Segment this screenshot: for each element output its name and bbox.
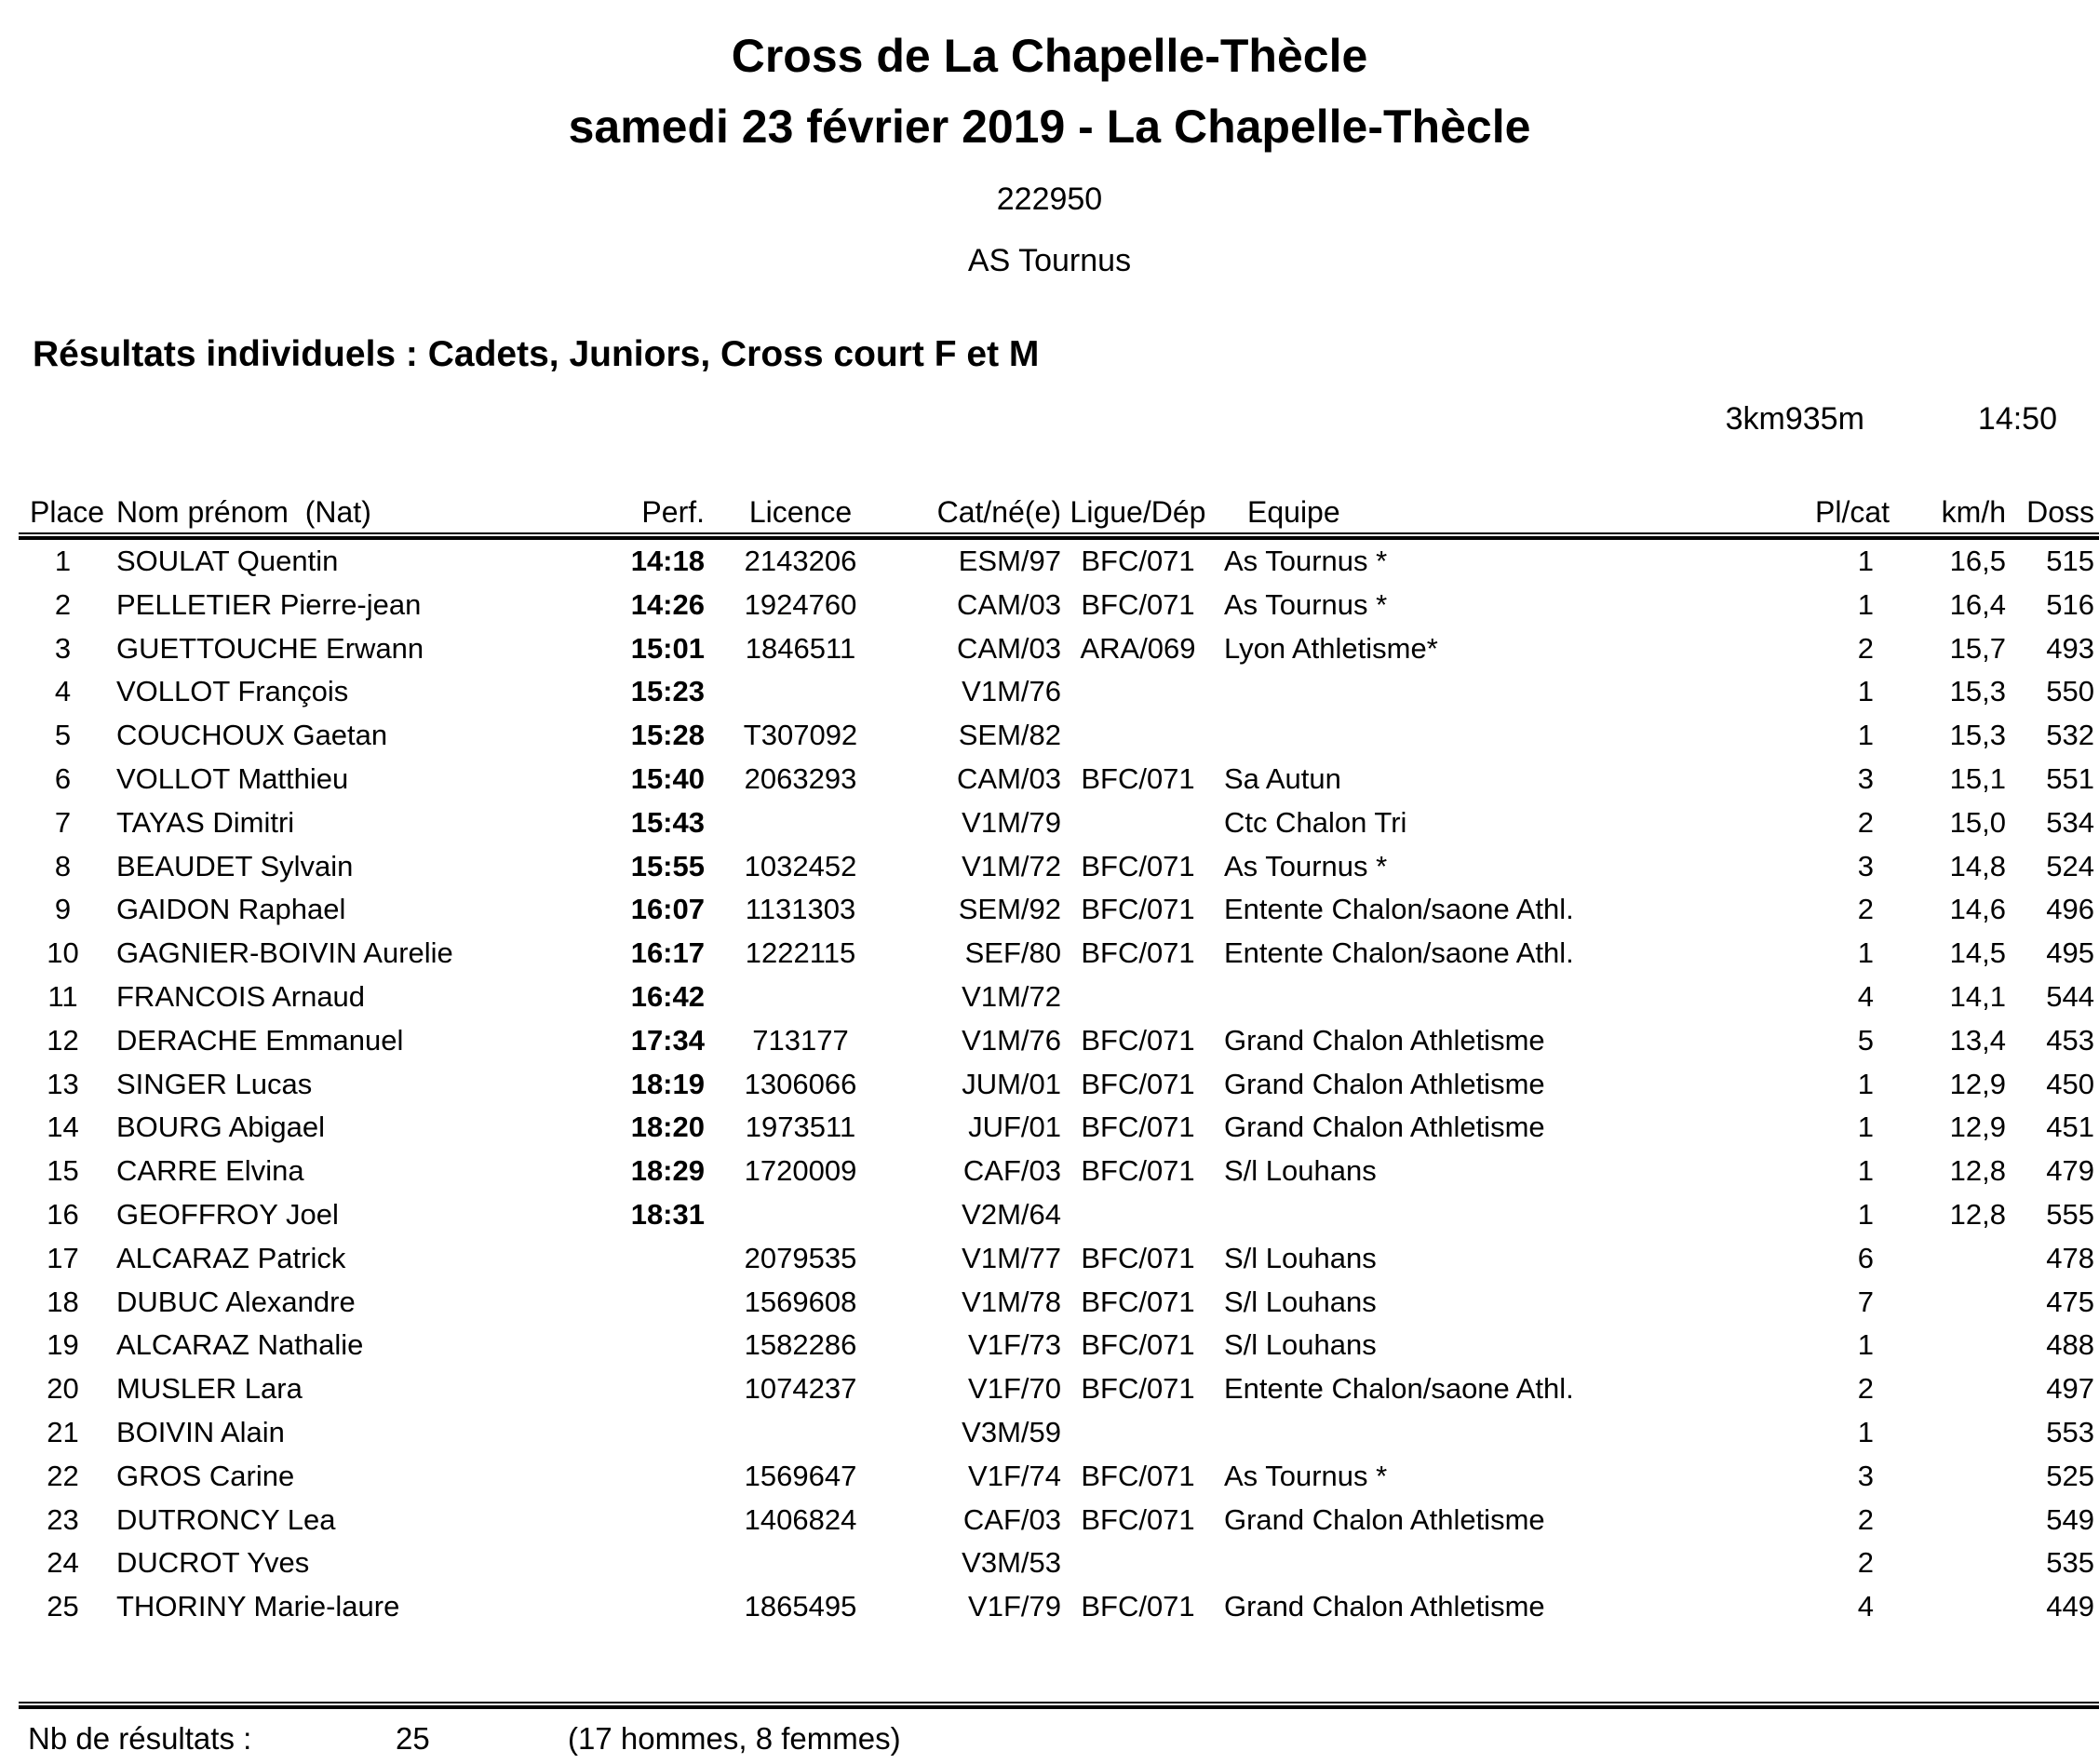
cell-place: 8 — [19, 845, 107, 889]
cell-licence: 2063293 — [712, 758, 889, 801]
cell-place: 21 — [19, 1411, 107, 1455]
cell-bib: 488 — [2011, 1324, 2099, 1367]
cell-category: CAM/03 — [889, 627, 1066, 671]
table-row: 23DUTRONCY Lea1406824CAF/03BFC/071Grand … — [19, 1499, 2099, 1542]
column-header-name: Nom prénom (Nat) — [107, 491, 614, 532]
cell-licence — [712, 1411, 889, 1455]
cell-performance: 15:40 — [614, 758, 712, 801]
cell-performance: 17:34 — [614, 1019, 712, 1063]
cell-place-in-category: 4 — [1815, 1585, 1904, 1629]
cell-place: 24 — [19, 1542, 107, 1585]
cell-licence: 1406824 — [712, 1499, 889, 1542]
cell-league: BFC/071 — [1066, 932, 1210, 976]
cell-name: GEOFFROY Joel — [107, 1193, 614, 1237]
bottom-separator-line — [19, 1702, 2099, 1709]
table-row: 12DERACHE Emmanuel17:34713177V1M/76BFC/0… — [19, 1019, 2099, 1063]
cell-speed: 15,3 — [1904, 670, 2011, 714]
results-table: Place Nom prénom (Nat) Perf. Licence Cat… — [19, 491, 2099, 1629]
table-row: 13SINGER Lucas18:191306066JUM/01BFC/071G… — [19, 1063, 2099, 1107]
cell-league — [1066, 1193, 1210, 1237]
cell-category: CAF/03 — [889, 1150, 1066, 1193]
cell-league: BFC/071 — [1066, 1106, 1210, 1150]
cell-team: As Tournus * — [1210, 540, 1815, 584]
table-row: 10GAGNIER-BOIVIN Aurelie16:171222115SEF/… — [19, 932, 2099, 976]
cell-bib: 451 — [2011, 1106, 2099, 1150]
cell-place: 15 — [19, 1150, 107, 1193]
race-start-time: 14:50 — [1978, 400, 2057, 438]
cell-league: BFC/071 — [1066, 1324, 1210, 1367]
cell-performance: 16:07 — [614, 888, 712, 932]
results-count: 25 — [396, 1720, 430, 1757]
cell-performance: 15:01 — [614, 627, 712, 671]
cell-speed: 15,0 — [1904, 801, 2011, 845]
cell-speed: 12,8 — [1904, 1193, 2011, 1237]
cell-performance: 16:42 — [614, 976, 712, 1019]
cell-licence: 713177 — [712, 1019, 889, 1063]
cell-place: 11 — [19, 976, 107, 1019]
cell-place-in-category: 1 — [1815, 1193, 1904, 1237]
cell-bib: 496 — [2011, 888, 2099, 932]
cell-team: S/l Louhans — [1210, 1150, 1815, 1193]
cell-league: BFC/071 — [1066, 1585, 1210, 1629]
cell-name: BEAUDET Sylvain — [107, 845, 614, 889]
cell-place-in-category: 1 — [1815, 1063, 1904, 1107]
cell-category: V1M/72 — [889, 976, 1066, 1019]
table-row: 20MUSLER Lara1074237V1F/70BFC/071Entente… — [19, 1367, 2099, 1411]
cell-name: GUETTOUCHE Erwann — [107, 627, 614, 671]
cell-team: Grand Chalon Athletisme — [1210, 1106, 1815, 1150]
cell-category: SEF/80 — [889, 932, 1066, 976]
cell-place-in-category: 2 — [1815, 801, 1904, 845]
cell-speed: 14,5 — [1904, 932, 2011, 976]
cell-licence: 1569608 — [712, 1281, 889, 1325]
cell-team: As Tournus * — [1210, 845, 1815, 889]
cell-name: TAYAS Dimitri — [107, 801, 614, 845]
cell-category: V1M/78 — [889, 1281, 1066, 1325]
cell-category: SEM/92 — [889, 888, 1066, 932]
cell-licence — [712, 670, 889, 714]
cell-name: COUCHOUX Gaetan — [107, 714, 614, 758]
cell-place-in-category: 2 — [1815, 627, 1904, 671]
cell-name: CARRE Elvina — [107, 1150, 614, 1193]
cell-place: 5 — [19, 714, 107, 758]
cell-bib: 516 — [2011, 584, 2099, 627]
cell-licence: 1222115 — [712, 932, 889, 976]
cell-team: Entente Chalon/saone Athl. — [1210, 932, 1815, 976]
cell-place: 1 — [19, 540, 107, 584]
cell-bib: 497 — [2011, 1367, 2099, 1411]
cell-category: CAM/03 — [889, 758, 1066, 801]
cell-performance: 15:55 — [614, 845, 712, 889]
cell-place: 23 — [19, 1499, 107, 1542]
cell-category: V1F/70 — [889, 1367, 1066, 1411]
cell-place-in-category: 6 — [1815, 1237, 1904, 1281]
cell-bib: 535 — [2011, 1542, 2099, 1585]
cell-league: BFC/071 — [1066, 540, 1210, 584]
column-header-league: Ligue/Dép — [1066, 491, 1210, 532]
cell-league: BFC/071 — [1066, 758, 1210, 801]
cell-speed — [1904, 1455, 2011, 1499]
cell-speed — [1904, 1542, 2011, 1585]
cell-name: MUSLER Lara — [107, 1367, 614, 1411]
cell-performance — [614, 1542, 712, 1585]
column-header-place: Place — [19, 491, 107, 532]
cell-bib: 549 — [2011, 1499, 2099, 1542]
cell-league: BFC/071 — [1066, 584, 1210, 627]
cell-place: 18 — [19, 1281, 107, 1325]
table-row: 7TAYAS Dimitri15:43V1M/79Ctc Chalon Tri2… — [19, 801, 2099, 845]
cell-category: V1M/77 — [889, 1237, 1066, 1281]
cell-league: BFC/071 — [1066, 1063, 1210, 1107]
cell-category: V1M/72 — [889, 845, 1066, 889]
table-row: 15CARRE Elvina18:291720009CAF/03BFC/071S… — [19, 1150, 2099, 1193]
cell-team: Entente Chalon/saone Athl. — [1210, 1367, 1815, 1411]
cell-team: Grand Chalon Athletisme — [1210, 1019, 1815, 1063]
cell-place: 14 — [19, 1106, 107, 1150]
cell-team: As Tournus * — [1210, 1455, 1815, 1499]
cell-place-in-category: 1 — [1815, 1106, 1904, 1150]
cell-league: BFC/071 — [1066, 1281, 1210, 1325]
column-header-licence: Licence — [712, 491, 889, 532]
cell-licence — [712, 801, 889, 845]
cell-team: Grand Chalon Athletisme — [1210, 1499, 1815, 1542]
document-header: Cross de La Chapelle-Thècle samedi 23 fé… — [0, 0, 2099, 162]
cell-licence: T307092 — [712, 714, 889, 758]
cell-name: SOULAT Quentin — [107, 540, 614, 584]
cell-performance — [614, 1367, 712, 1411]
cell-licence: 2079535 — [712, 1237, 889, 1281]
cell-place-in-category: 1 — [1815, 670, 1904, 714]
cell-team — [1210, 1193, 1815, 1237]
cell-speed: 12,8 — [1904, 1150, 2011, 1193]
cell-licence: 1582286 — [712, 1324, 889, 1367]
cell-performance: 15:43 — [614, 801, 712, 845]
cell-name: DUCROT Yves — [107, 1542, 614, 1585]
cell-name: SINGER Lucas — [107, 1063, 614, 1107]
column-header-performance: Perf. — [614, 491, 712, 532]
cell-category: V1M/79 — [889, 801, 1066, 845]
cell-performance: 18:20 — [614, 1106, 712, 1150]
document-footer: Nb de résultats : 25 (17 hommes, 8 femme… — [0, 1720, 2099, 1759]
cell-place: 4 — [19, 670, 107, 714]
cell-licence: 1032452 — [712, 845, 889, 889]
cell-place: 17 — [19, 1237, 107, 1281]
cell-speed: 16,4 — [1904, 584, 2011, 627]
table-row: 16GEOFFROY Joel18:31V2M/64112,8555 — [19, 1193, 2099, 1237]
event-date-location: samedi 23 février 2019 - La Chapelle-Thè… — [0, 91, 2099, 162]
cell-licence: 1569647 — [712, 1455, 889, 1499]
cell-category: V1F/74 — [889, 1455, 1066, 1499]
cell-bib: 553 — [2011, 1411, 2099, 1455]
cell-place-in-category: 2 — [1815, 888, 1904, 932]
cell-team: Grand Chalon Athletisme — [1210, 1063, 1815, 1107]
cell-place-in-category: 1 — [1815, 584, 1904, 627]
cell-league: ARA/069 — [1066, 627, 1210, 671]
cell-performance: 15:28 — [614, 714, 712, 758]
cell-bib: 555 — [2011, 1193, 2099, 1237]
cell-licence — [712, 976, 889, 1019]
cell-speed: 15,3 — [1904, 714, 2011, 758]
cell-team: Entente Chalon/saone Athl. — [1210, 888, 1815, 932]
event-code: 222950 — [0, 181, 2099, 218]
cell-place: 3 — [19, 627, 107, 671]
table-row: 4VOLLOT François15:23V1M/76115,3550 — [19, 670, 2099, 714]
cell-name: ALCARAZ Nathalie — [107, 1324, 614, 1367]
cell-speed — [1904, 1324, 2011, 1367]
cell-name: DUTRONCY Lea — [107, 1499, 614, 1542]
table-row: 8BEAUDET Sylvain15:551032452V1M/72BFC/07… — [19, 845, 2099, 889]
cell-category: V1M/76 — [889, 670, 1066, 714]
cell-place-in-category: 3 — [1815, 1455, 1904, 1499]
cell-name: DERACHE Emmanuel — [107, 1019, 614, 1063]
table-row: 24DUCROT YvesV3M/532535 — [19, 1542, 2099, 1585]
cell-speed: 14,8 — [1904, 845, 2011, 889]
cell-name: VOLLOT François — [107, 670, 614, 714]
cell-league: BFC/071 — [1066, 1499, 1210, 1542]
cell-team — [1210, 714, 1815, 758]
table-row: 19ALCARAZ Nathalie1582286V1F/73BFC/071S/… — [19, 1324, 2099, 1367]
cell-bib: 493 — [2011, 627, 2099, 671]
cell-team — [1210, 1542, 1815, 1585]
cell-place: 10 — [19, 932, 107, 976]
column-header-place-in-category: Pl/cat — [1815, 491, 1904, 532]
cell-league: BFC/071 — [1066, 845, 1210, 889]
cell-league — [1066, 1542, 1210, 1585]
cell-licence: 1973511 — [712, 1106, 889, 1150]
cell-speed: 15,1 — [1904, 758, 2011, 801]
race-distance: 3km935m — [1726, 400, 1864, 438]
cell-performance — [614, 1585, 712, 1629]
cell-team: Grand Chalon Athletisme — [1210, 1585, 1815, 1629]
event-title: Cross de La Chapelle-Thècle — [0, 20, 2099, 91]
cell-performance — [614, 1455, 712, 1499]
cell-team — [1210, 976, 1815, 1019]
cell-team — [1210, 670, 1815, 714]
cell-bib: 479 — [2011, 1150, 2099, 1193]
cell-speed: 15,7 — [1904, 627, 2011, 671]
cell-name: THORINY Marie-laure — [107, 1585, 614, 1629]
cell-place: 13 — [19, 1063, 107, 1107]
cell-licence: 1865495 — [712, 1585, 889, 1629]
cell-league: BFC/071 — [1066, 1019, 1210, 1063]
section-title: Résultats individuels : Cadets, Juniors,… — [33, 333, 2099, 376]
cell-team — [1210, 1411, 1815, 1455]
cell-category: V1M/76 — [889, 1019, 1066, 1063]
cell-league: BFC/071 — [1066, 1237, 1210, 1281]
cell-league — [1066, 1411, 1210, 1455]
cell-speed: 13,4 — [1904, 1019, 2011, 1063]
cell-speed — [1904, 1499, 2011, 1542]
cell-bib: 551 — [2011, 758, 2099, 801]
cell-league — [1066, 801, 1210, 845]
cell-performance: 15:23 — [614, 670, 712, 714]
cell-speed: 12,9 — [1904, 1106, 2011, 1150]
cell-performance — [614, 1237, 712, 1281]
cell-licence: 1924760 — [712, 584, 889, 627]
table-row: 21BOIVIN AlainV3M/591553 — [19, 1411, 2099, 1455]
cell-licence — [712, 1542, 889, 1585]
cell-place-in-category: 7 — [1815, 1281, 1904, 1325]
table-row: 22GROS Carine1569647V1F/74BFC/071As Tour… — [19, 1455, 2099, 1499]
cell-name: FRANCOIS Arnaud — [107, 976, 614, 1019]
table-row: 18DUBUC Alexandre1569608V1M/78BFC/071S/l… — [19, 1281, 2099, 1325]
cell-place: 25 — [19, 1585, 107, 1629]
cell-bib: 524 — [2011, 845, 2099, 889]
cell-team: S/l Louhans — [1210, 1281, 1815, 1325]
table-row: 1SOULAT Quentin14:182143206ESM/97BFC/071… — [19, 540, 2099, 584]
column-header-team: Equipe — [1210, 491, 1815, 532]
cell-place-in-category: 3 — [1815, 845, 1904, 889]
cell-name: GAIDON Raphael — [107, 888, 614, 932]
cell-league: BFC/071 — [1066, 1367, 1210, 1411]
table-row: 11FRANCOIS Arnaud16:42V1M/72414,1544 — [19, 976, 2099, 1019]
race-info: 3km935m 14:50 — [0, 400, 2099, 438]
cell-speed: 12,9 — [1904, 1063, 2011, 1107]
cell-place: 22 — [19, 1455, 107, 1499]
cell-league: BFC/071 — [1066, 888, 1210, 932]
results-document: Cross de La Chapelle-Thècle samedi 23 fé… — [0, 0, 2099, 1764]
cell-place: 19 — [19, 1324, 107, 1367]
cell-place-in-category: 1 — [1815, 932, 1904, 976]
cell-league — [1066, 976, 1210, 1019]
cell-bib: 449 — [2011, 1585, 2099, 1629]
cell-league: BFC/071 — [1066, 1455, 1210, 1499]
table-row: 6VOLLOT Matthieu15:402063293CAM/03BFC/07… — [19, 758, 2099, 801]
cell-performance: 14:26 — [614, 584, 712, 627]
cell-bib: 450 — [2011, 1063, 2099, 1107]
cell-performance: 18:29 — [614, 1150, 712, 1193]
cell-place: 20 — [19, 1367, 107, 1411]
cell-category: CAF/03 — [889, 1499, 1066, 1542]
cell-place-in-category: 1 — [1815, 714, 1904, 758]
cell-name: DUBUC Alexandre — [107, 1281, 614, 1325]
cell-team: Lyon Athletisme* — [1210, 627, 1815, 671]
cell-speed: 16,5 — [1904, 540, 2011, 584]
results-count-label: Nb de résultats : — [28, 1720, 251, 1757]
cell-place: 2 — [19, 584, 107, 627]
cell-name: VOLLOT Matthieu — [107, 758, 614, 801]
organizer-club: AS Tournus — [0, 242, 2099, 279]
table-row: 5COUCHOUX Gaetan15:28T307092SEM/82115,35… — [19, 714, 2099, 758]
cell-place: 16 — [19, 1193, 107, 1237]
cell-category: V1F/73 — [889, 1324, 1066, 1367]
cell-category: JUM/01 — [889, 1063, 1066, 1107]
cell-speed: 14,6 — [1904, 888, 2011, 932]
cell-team: As Tournus * — [1210, 584, 1815, 627]
cell-performance — [614, 1499, 712, 1542]
cell-licence: 1846511 — [712, 627, 889, 671]
cell-licence: 1131303 — [712, 888, 889, 932]
cell-team: Ctc Chalon Tri — [1210, 801, 1815, 845]
cell-performance: 18:31 — [614, 1193, 712, 1237]
cell-bib: 478 — [2011, 1237, 2099, 1281]
cell-category: V3M/59 — [889, 1411, 1066, 1455]
column-header-category: Cat/né(e) — [889, 491, 1066, 532]
cell-licence: 1720009 — [712, 1150, 889, 1193]
cell-speed — [1904, 1281, 2011, 1325]
cell-name: PELLETIER Pierre-jean — [107, 584, 614, 627]
table-row: 25THORINY Marie-laure1865495V1F/79BFC/07… — [19, 1585, 2099, 1629]
cell-place: 6 — [19, 758, 107, 801]
cell-performance: 14:18 — [614, 540, 712, 584]
table-row: 9GAIDON Raphael16:071131303SEM/92BFC/071… — [19, 888, 2099, 932]
table-row: 14BOURG Abigael18:201973511JUF/01BFC/071… — [19, 1106, 2099, 1150]
cell-league — [1066, 714, 1210, 758]
cell-bib: 475 — [2011, 1281, 2099, 1325]
cell-team: S/l Louhans — [1210, 1324, 1815, 1367]
cell-name: ALCARAZ Patrick — [107, 1237, 614, 1281]
cell-bib: 544 — [2011, 976, 2099, 1019]
cell-league: BFC/071 — [1066, 1150, 1210, 1193]
cell-place-in-category: 2 — [1815, 1542, 1904, 1585]
header-separator-line — [19, 532, 2099, 540]
cell-bib: 534 — [2011, 801, 2099, 845]
table-header-row: Place Nom prénom (Nat) Perf. Licence Cat… — [19, 491, 2099, 532]
cell-bib: 453 — [2011, 1019, 2099, 1063]
column-header-speed: km/h — [1904, 491, 2011, 532]
table-row: 17ALCARAZ Patrick2079535V1M/77BFC/071S/l… — [19, 1237, 2099, 1281]
cell-place-in-category: 1 — [1815, 1411, 1904, 1455]
cell-place-in-category: 1 — [1815, 1150, 1904, 1193]
cell-place-in-category: 1 — [1815, 540, 1904, 584]
cell-licence: 2143206 — [712, 540, 889, 584]
cell-bib: 515 — [2011, 540, 2099, 584]
cell-category: CAM/03 — [889, 584, 1066, 627]
cell-place-in-category: 3 — [1815, 758, 1904, 801]
cell-place-in-category: 5 — [1815, 1019, 1904, 1063]
cell-place-in-category: 1 — [1815, 1324, 1904, 1367]
cell-team: Sa Autun — [1210, 758, 1815, 801]
cell-bib: 495 — [2011, 932, 2099, 976]
cell-speed: 14,1 — [1904, 976, 2011, 1019]
cell-name: BOIVIN Alain — [107, 1411, 614, 1455]
cell-name: GROS Carine — [107, 1455, 614, 1499]
cell-name: BOURG Abigael — [107, 1106, 614, 1150]
cell-category: V2M/64 — [889, 1193, 1066, 1237]
cell-place: 9 — [19, 888, 107, 932]
cell-speed — [1904, 1367, 2011, 1411]
cell-bib: 550 — [2011, 670, 2099, 714]
table-row: 2PELLETIER Pierre-jean14:261924760CAM/03… — [19, 584, 2099, 627]
results-breakdown: (17 hommes, 8 femmes) — [568, 1720, 901, 1757]
cell-bib: 525 — [2011, 1455, 2099, 1499]
cell-licence: 1306066 — [712, 1063, 889, 1107]
cell-place: 7 — [19, 801, 107, 845]
table-row: 3GUETTOUCHE Erwann15:011846511CAM/03ARA/… — [19, 627, 2099, 671]
cell-performance — [614, 1411, 712, 1455]
cell-category: SEM/82 — [889, 714, 1066, 758]
results-table-body: 1SOULAT Quentin14:182143206ESM/97BFC/071… — [19, 540, 2099, 1629]
cell-team: S/l Louhans — [1210, 1237, 1815, 1281]
cell-name: GAGNIER-BOIVIN Aurelie — [107, 932, 614, 976]
cell-licence: 1074237 — [712, 1367, 889, 1411]
cell-speed — [1904, 1585, 2011, 1629]
cell-league — [1066, 670, 1210, 714]
cell-place-in-category: 2 — [1815, 1367, 1904, 1411]
cell-category: ESM/97 — [889, 540, 1066, 584]
cell-place-in-category: 2 — [1815, 1499, 1904, 1542]
cell-performance: 18:19 — [614, 1063, 712, 1107]
cell-category: V1F/79 — [889, 1585, 1066, 1629]
cell-place: 12 — [19, 1019, 107, 1063]
column-header-bib: Doss — [2011, 491, 2099, 532]
cell-speed — [1904, 1237, 2011, 1281]
cell-speed — [1904, 1411, 2011, 1455]
cell-category: V3M/53 — [889, 1542, 1066, 1585]
cell-place-in-category: 4 — [1815, 976, 1904, 1019]
cell-performance — [614, 1324, 712, 1367]
cell-performance — [614, 1281, 712, 1325]
